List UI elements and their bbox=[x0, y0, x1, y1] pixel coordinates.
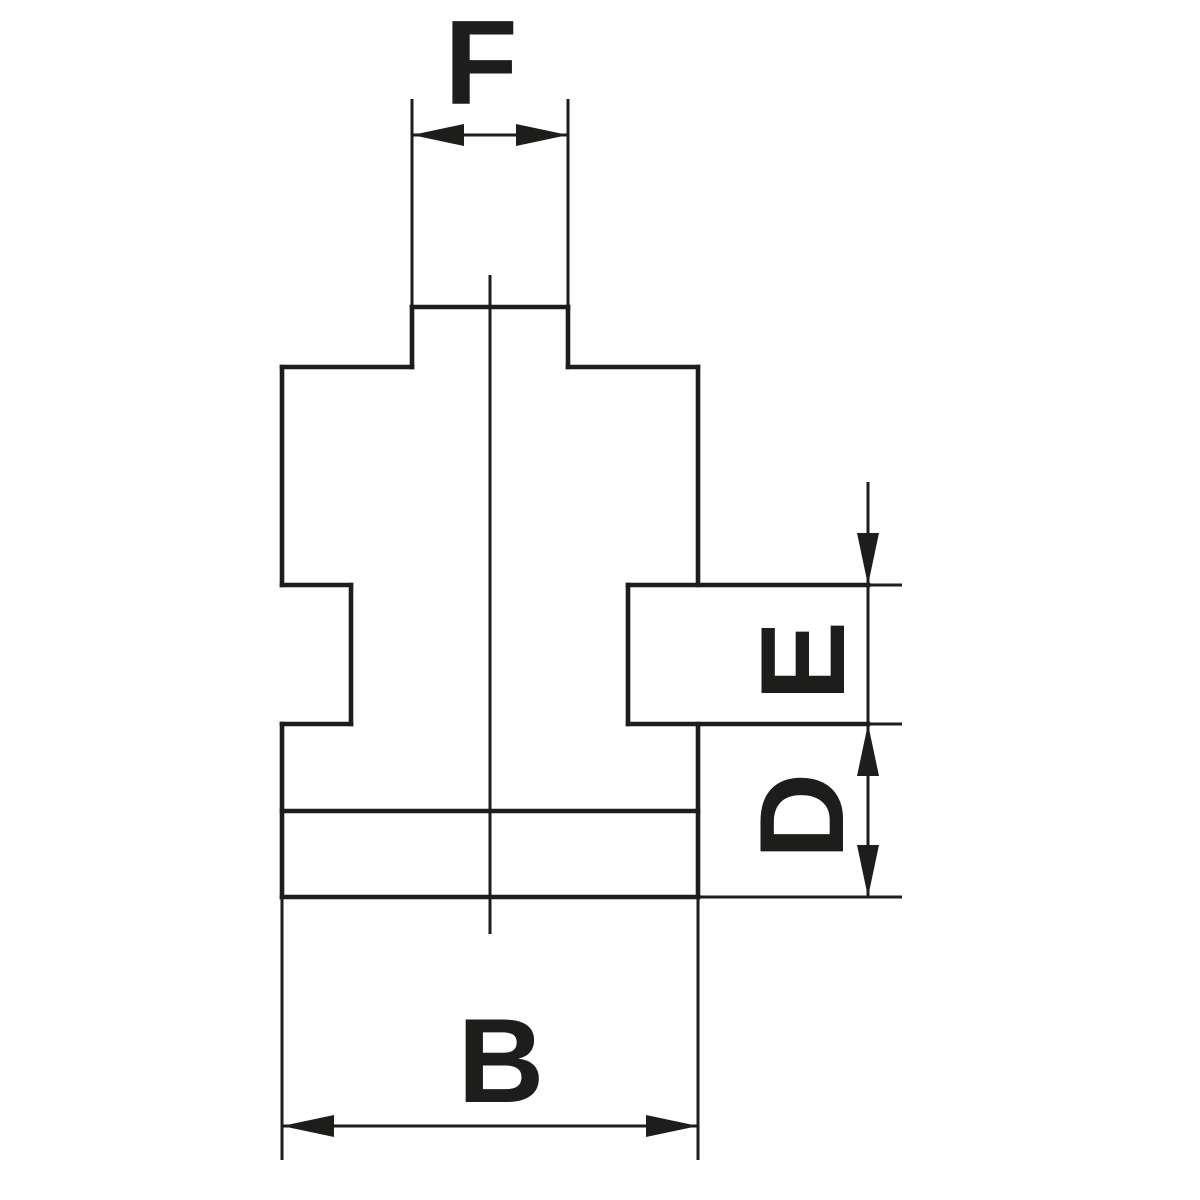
jaw-cross-section-drawing: F E D B bbox=[0, 0, 1200, 1200]
dimension-arrowhead-f-right bbox=[516, 124, 568, 146]
drawing-canvas: F E D B bbox=[0, 0, 1200, 1200]
dimension-label-d: D bbox=[735, 773, 869, 860]
dimension-arrowhead-b-right bbox=[646, 1115, 698, 1137]
dimension-label-f: F bbox=[444, 0, 517, 130]
dimension-label-e: E bbox=[736, 621, 870, 701]
dimension-arrowhead-e-bottom-d-top bbox=[857, 724, 879, 776]
dimension-arrowhead-b-left bbox=[282, 1115, 334, 1137]
dimension-arrowhead-e-top bbox=[857, 533, 879, 585]
dimension-label-b: B bbox=[458, 994, 545, 1128]
labels-layer: F E D B bbox=[444, 0, 870, 1128]
